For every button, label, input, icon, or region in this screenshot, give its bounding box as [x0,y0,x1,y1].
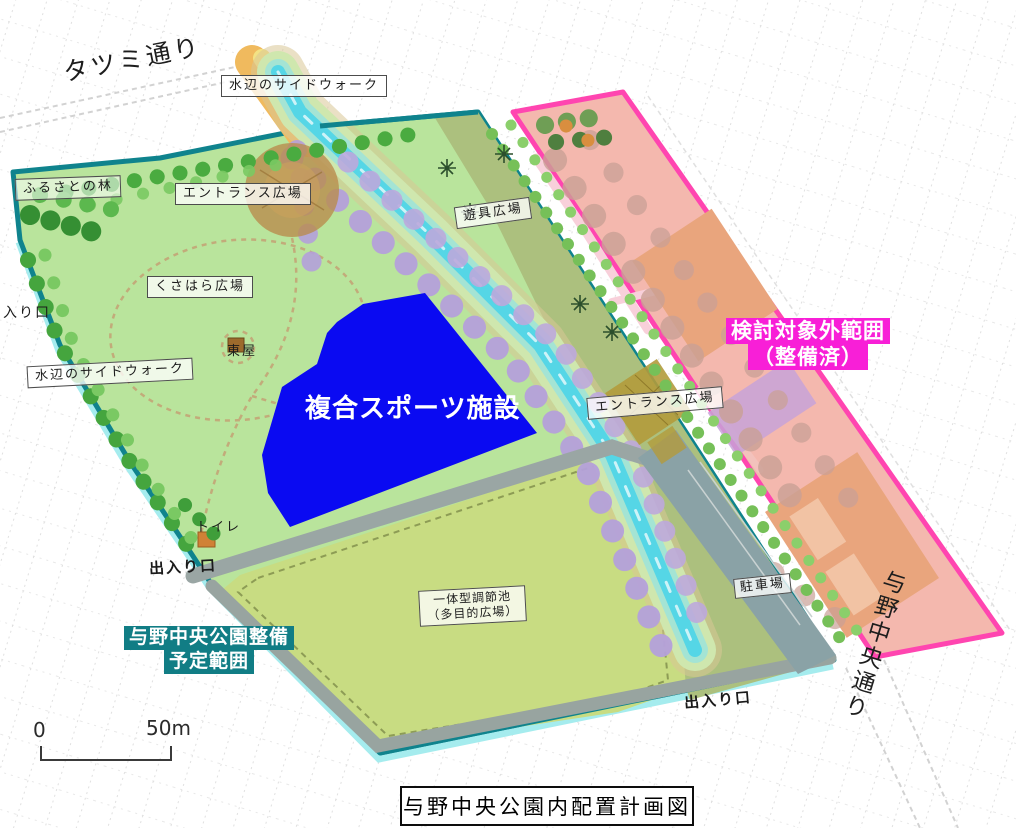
label-toilet: トイレ [196,516,241,535]
label-pond: 一体型調節池 （多目的広場） [418,585,527,627]
label-excluded-line2: （整備済） [748,344,868,370]
scale-bar [40,746,172,761]
map-title: 与野中央公園内配置計画図 [400,786,694,826]
label-kusahara-plaza: くさはら広場 [147,276,253,298]
label-waterside-sidewalk-top: 水辺のサイドウォーク [221,75,387,97]
scale-end: 50m [146,716,191,740]
label-exit-southwest: 出入り口 [148,554,217,579]
label-planned-line1: 与野中央公園整備 [124,626,294,650]
label-entrance-plaza-top: エントランス広場 [175,183,311,205]
label-exit-west: 出入り口 [0,302,51,322]
label-planned-line2: 予定範囲 [164,650,254,674]
label-planned-range: 与野中央公園整備 予定範囲 [120,626,298,674]
scale-start: 0 [33,718,46,742]
label-azumaya: 東屋 [227,340,257,359]
label-furusato-forest: ふるさとの林 [15,175,122,201]
label-sports-facility: 複合スポーツ施設 [305,388,520,425]
park-plan-map: タツミ通り 与野中央通り 水辺のサイドウォーク ふるさとの林 エントランス広場 … [0,0,1016,828]
label-excluded-line1: 検討対象外範囲 [726,318,890,344]
label-excluded-range: 検討対象外範囲 （整備済） [722,318,894,370]
